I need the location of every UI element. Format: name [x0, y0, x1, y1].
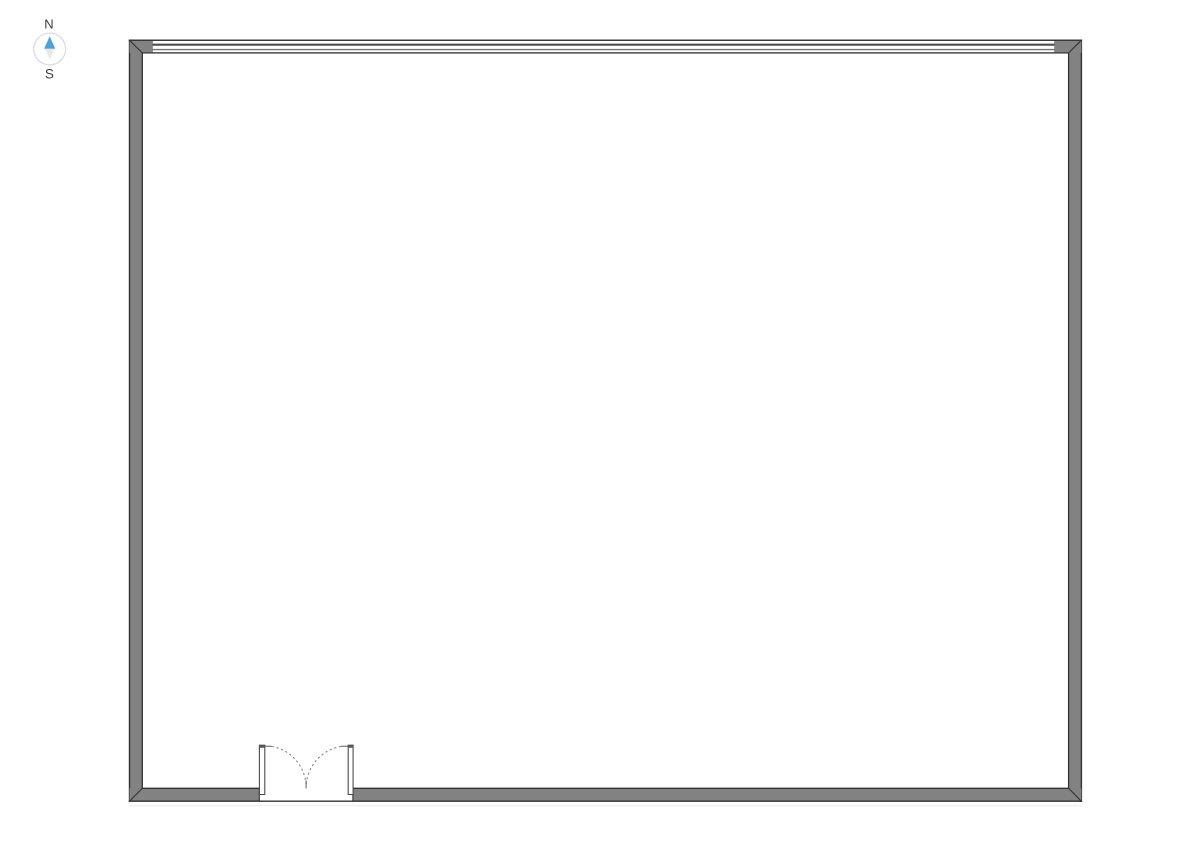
svg-text:S: S — [45, 67, 54, 82]
svg-text:N: N — [44, 17, 53, 32]
